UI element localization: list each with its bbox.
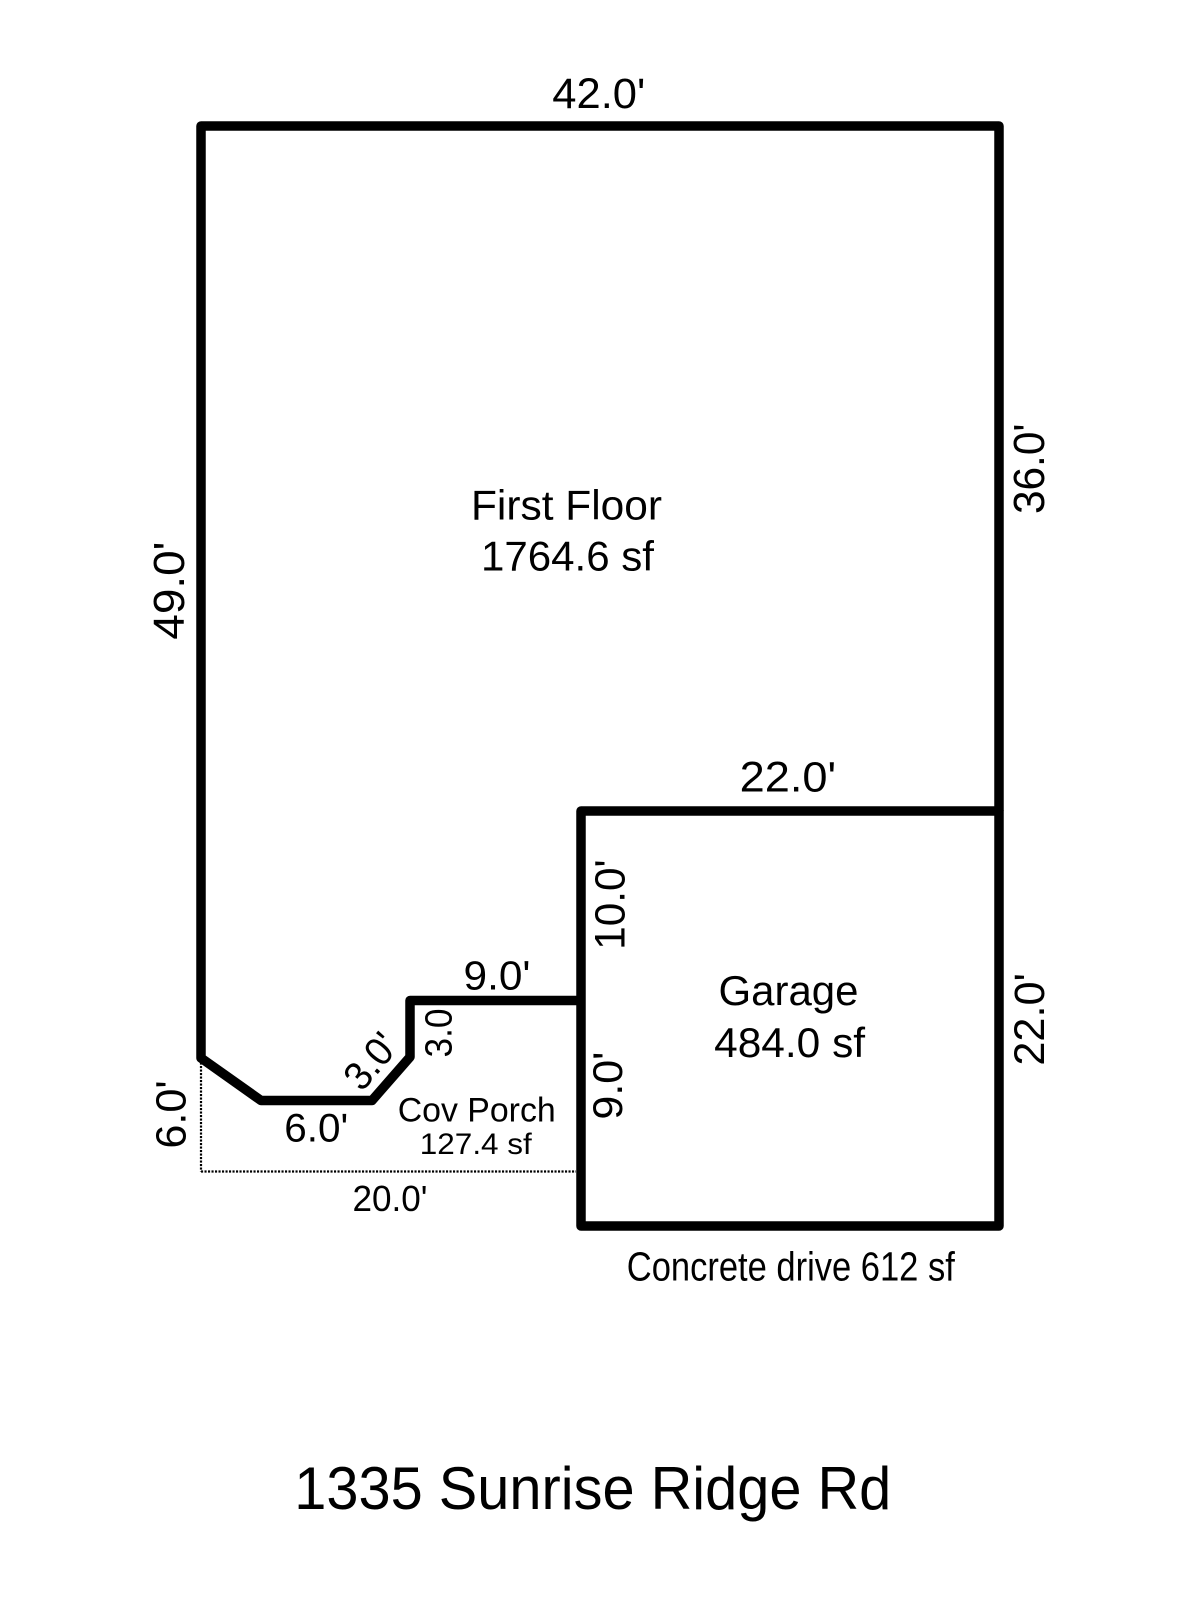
- svg-text:36.0': 36.0': [1006, 424, 1054, 515]
- svg-text:1764.6 sf: 1764.6 sf: [481, 532, 654, 579]
- svg-text:Garage: Garage: [719, 967, 859, 1014]
- svg-text:1335 Sunrise Ridge Rd: 1335 Sunrise Ridge Rd: [294, 1454, 891, 1522]
- svg-text:42.0': 42.0': [552, 71, 645, 118]
- svg-text:6.0': 6.0': [284, 1107, 348, 1151]
- svg-text:49.0': 49.0': [146, 542, 194, 640]
- svg-text:3.0: 3.0: [418, 1009, 460, 1058]
- svg-text:Cov Porch: Cov Porch: [398, 1092, 556, 1130]
- svg-text:22.0': 22.0': [1007, 973, 1054, 1066]
- svg-text:20.0': 20.0': [353, 1178, 428, 1219]
- svg-text:484.0 sf: 484.0 sf: [714, 1019, 865, 1066]
- svg-text:127.4 sf: 127.4 sf: [420, 1128, 533, 1161]
- svg-text:Concrete drive 612 sf: Concrete drive 612 sf: [627, 1244, 956, 1290]
- svg-text:First Floor: First Floor: [471, 482, 662, 529]
- svg-text:9.0': 9.0': [464, 953, 531, 999]
- svg-text:9.0': 9.0': [584, 1052, 631, 1120]
- svg-text:22.0': 22.0': [740, 755, 837, 802]
- svg-text:6.0': 6.0': [148, 1080, 195, 1148]
- svg-text:10.0': 10.0': [586, 859, 634, 950]
